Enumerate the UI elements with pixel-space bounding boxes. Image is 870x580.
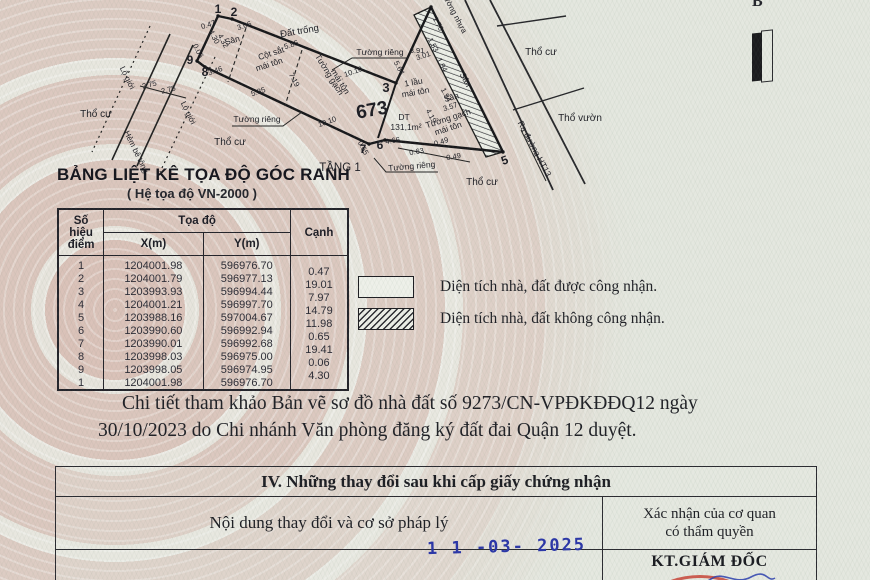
legend-item-unrecognized: Diện tích nhà, đất không công nhận. xyxy=(358,308,665,330)
y-cell: 596976.70 xyxy=(203,376,290,390)
sketch-label: 1 xyxy=(215,2,222,16)
legend-item-recognized: Diện tích nhà, đất được công nhận. xyxy=(358,276,665,298)
sketch-label: Tường riêng xyxy=(388,159,436,173)
y-cell: 596976.70 xyxy=(203,256,290,273)
col-header-y: Y(m) xyxy=(203,233,290,256)
vertex-point xyxy=(195,59,198,62)
sketch-label: DT xyxy=(398,112,409,122)
x-cell: 1203998.05 xyxy=(104,363,203,376)
legend-label: Diện tích nhà, đất không công nhận. xyxy=(440,310,665,328)
sketch-label: 0.65 xyxy=(356,139,371,156)
coord-row: 91203998.05596974.954.30 xyxy=(58,363,348,376)
legend-box-unrecognized xyxy=(358,308,414,330)
col-header-x: X(m) xyxy=(104,233,203,256)
section-iv-body-row: 1 1 -03- 2025 KT.GIÁM ĐỐC xyxy=(56,550,816,580)
x-cell: 1203993.93 xyxy=(104,285,203,298)
point-cell: 9 xyxy=(58,363,104,376)
point-cell: 5 xyxy=(58,311,104,324)
sketch-label: 3 xyxy=(382,80,389,95)
y-cell: 596994.44 xyxy=(203,285,290,298)
alley-edge-line xyxy=(112,34,170,160)
point-cell: 2 xyxy=(58,272,104,285)
signature-scribble xyxy=(669,571,779,580)
sketch-label: Tường riêng xyxy=(233,114,280,124)
parcel-tick-line xyxy=(513,88,584,110)
x-cell: 1204001.98 xyxy=(104,376,203,390)
col-header-coords: Tọa độ xyxy=(104,209,291,233)
section-iv-title: IV. Những thay đổi sau khi cấp giấy chứn… xyxy=(56,467,816,497)
corner-bar-outline xyxy=(761,29,773,82)
x-cell: 1204001.98 xyxy=(104,256,203,273)
legend-label: Diện tích nhà, đất được công nhận. xyxy=(440,278,657,296)
road-setback-line xyxy=(92,26,150,152)
point-cell: 7 xyxy=(58,337,104,350)
point-cell: 8 xyxy=(58,350,104,363)
sketch-label: 2.75 xyxy=(141,78,157,90)
parcel-tick-line xyxy=(497,16,566,26)
sketch-label: Thổ cư xyxy=(466,176,498,188)
point-cell: 4 xyxy=(58,298,104,311)
coord-row: 71203990.01596992.6819.41 xyxy=(58,337,348,350)
sketch-label: 2.75 xyxy=(160,83,176,95)
sketch-label: 5.64 xyxy=(392,59,407,76)
changes-cell: 1 1 -03- 2025 xyxy=(56,550,603,580)
sketch-label: 2 xyxy=(231,5,238,19)
x-cell: 1203990.60 xyxy=(104,324,203,337)
coordinate-table-section: BẢNG LIỆT KÊ TỌA ĐỘ GÓC RANH ( Hệ tọa độ… xyxy=(57,165,357,391)
sketch-label: Thổ vườn xyxy=(558,112,602,124)
x-cell: 1203998.03 xyxy=(104,350,203,363)
legend-box-recognized xyxy=(358,276,414,298)
y-cell: 597004.67 xyxy=(203,311,290,324)
sketch-label: Lộ giới xyxy=(179,100,198,126)
sketch-label: Lộ giới xyxy=(118,65,137,91)
sketch-label: 10.10 xyxy=(343,64,364,79)
coord-row: 11204001.98596976.70 xyxy=(58,376,348,390)
sketch-label: Thổ cư xyxy=(214,136,246,148)
sketch-label: Tường riêng xyxy=(356,47,403,57)
coord-table-body: 11204001.98596976.700.4721204001.7959697… xyxy=(58,256,348,391)
coord-row: 61203990.60596992.940.65 xyxy=(58,324,348,337)
sketch-label: 131,1m² xyxy=(390,122,421,132)
coord-row: 11204001.98596976.700.47 xyxy=(58,256,348,273)
y-cell: 596974.95 xyxy=(203,363,290,376)
vertex-point xyxy=(429,5,432,8)
point-cell: 1 xyxy=(58,256,104,273)
sketch-label: 9 xyxy=(187,53,194,67)
coord-table-subtitle: ( Hệ tọa độ VN-2000 ) xyxy=(57,186,327,201)
legend: Diện tích nhà, đất được công nhận. Diện … xyxy=(358,276,665,340)
corner-bar-mark xyxy=(752,32,762,81)
page-corner-letter: B xyxy=(752,0,763,11)
sketch-label: Thổ cư xyxy=(80,108,112,120)
point-cell: 3 xyxy=(58,285,104,298)
note-line: 30/10/2023 do Chi nhánh Văn phòng đăng k… xyxy=(98,417,788,444)
vertex-point xyxy=(394,81,397,84)
date-stamp: 1 1 -03- 2025 xyxy=(427,535,587,559)
y-cell: 596992.94 xyxy=(203,324,290,337)
x-cell: 1203990.01 xyxy=(104,337,203,350)
sketch-label: 0.49 xyxy=(446,151,462,162)
coord-row: 41204001.21596997.7014.79 xyxy=(58,298,348,311)
reference-note: Chi tiết tham khảo Bản vẽ sơ đồ nhà đất … xyxy=(98,390,788,444)
y-cell: 596992.68 xyxy=(203,337,290,350)
y-cell: 596975.00 xyxy=(203,350,290,363)
section-iv-table: IV. Những thay đổi sau khi cấp giấy chứn… xyxy=(55,466,817,580)
y-cell: 596977.13 xyxy=(203,272,290,285)
sketch-label: Đất trống xyxy=(279,23,319,41)
coord-table-title: BẢNG LIỆT KÊ TỌA ĐỘ GÓC RANH xyxy=(57,165,357,185)
sketch-label: Thổ cư xyxy=(525,46,557,58)
point-cell: 6 xyxy=(58,324,104,337)
signature-title: KT.GIÁM ĐỐC xyxy=(603,553,816,571)
sketch-label: 6 xyxy=(377,138,384,152)
sketch-label: 3.91 xyxy=(410,46,425,55)
x-cell: 1203988.16 xyxy=(104,311,203,324)
coord-row: 21204001.79596977.1319.01 xyxy=(58,272,348,285)
land-certificate-page: 12983765673TẦNG 1DT131,1m²1 lầumái tônĐấ… xyxy=(0,0,870,580)
col-header-edge: Cạnh xyxy=(290,209,348,256)
x-cell: 1204001.79 xyxy=(104,272,203,285)
coordinate-table: Số hiệu điểm Tọa độ Cạnh X(m) Y(m) 11204… xyxy=(57,208,349,391)
sketch-label: đường nhựa xyxy=(440,0,469,35)
sketch-label: 4.66 xyxy=(385,135,401,146)
x-cell: 1204001.21 xyxy=(104,298,203,311)
col-header-point: Số hiệu điểm xyxy=(58,209,104,256)
y-cell: 596997.70 xyxy=(203,298,290,311)
edge-cell: 0.47 xyxy=(290,256,348,273)
sketch-label: 5 xyxy=(499,152,510,168)
confirmation-cell: KT.GIÁM ĐỐC xyxy=(603,550,816,580)
sketch-label: 7.19 xyxy=(287,71,302,88)
sketch-label: Ra đường HT13 xyxy=(516,119,554,179)
note-line: Chi tiết tham khảo Bản vẽ sơ đồ nhà đất … xyxy=(122,390,788,417)
sketch-label: 0.63 xyxy=(409,146,425,157)
col-header-confirmation: Xác nhận của cơ quan có thẩm quyền xyxy=(603,497,816,549)
sketch-label: 5.85 xyxy=(250,85,267,98)
point-cell: 1 xyxy=(58,376,104,390)
